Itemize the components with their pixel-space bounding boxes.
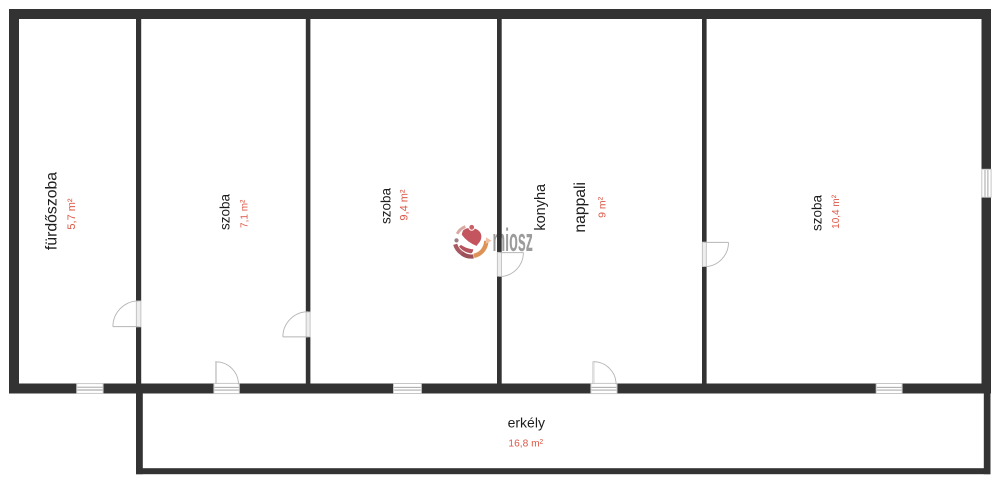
svg-text:erkély: erkély (508, 415, 545, 431)
svg-text:fürdőszoba: fürdőszoba (43, 172, 60, 250)
svg-text:9,4 m²: 9,4 m² (399, 189, 411, 221)
svg-text:nappali: nappali (572, 182, 589, 233)
svg-text:konyha: konyha (533, 183, 549, 231)
svg-text:szoba: szoba (379, 187, 394, 224)
svg-text:16,8 m²: 16,8 m² (508, 439, 543, 450)
svg-text:szoba: szoba (218, 193, 233, 230)
svg-text:5,7 m²: 5,7 m² (66, 198, 78, 230)
svg-text:9 m²: 9 m² (597, 196, 609, 218)
svg-text:10,4 m²: 10,4 m² (831, 194, 842, 229)
svg-text:7,1 m²: 7,1 m² (240, 199, 251, 228)
svg-text:szoba: szoba (810, 194, 825, 231)
